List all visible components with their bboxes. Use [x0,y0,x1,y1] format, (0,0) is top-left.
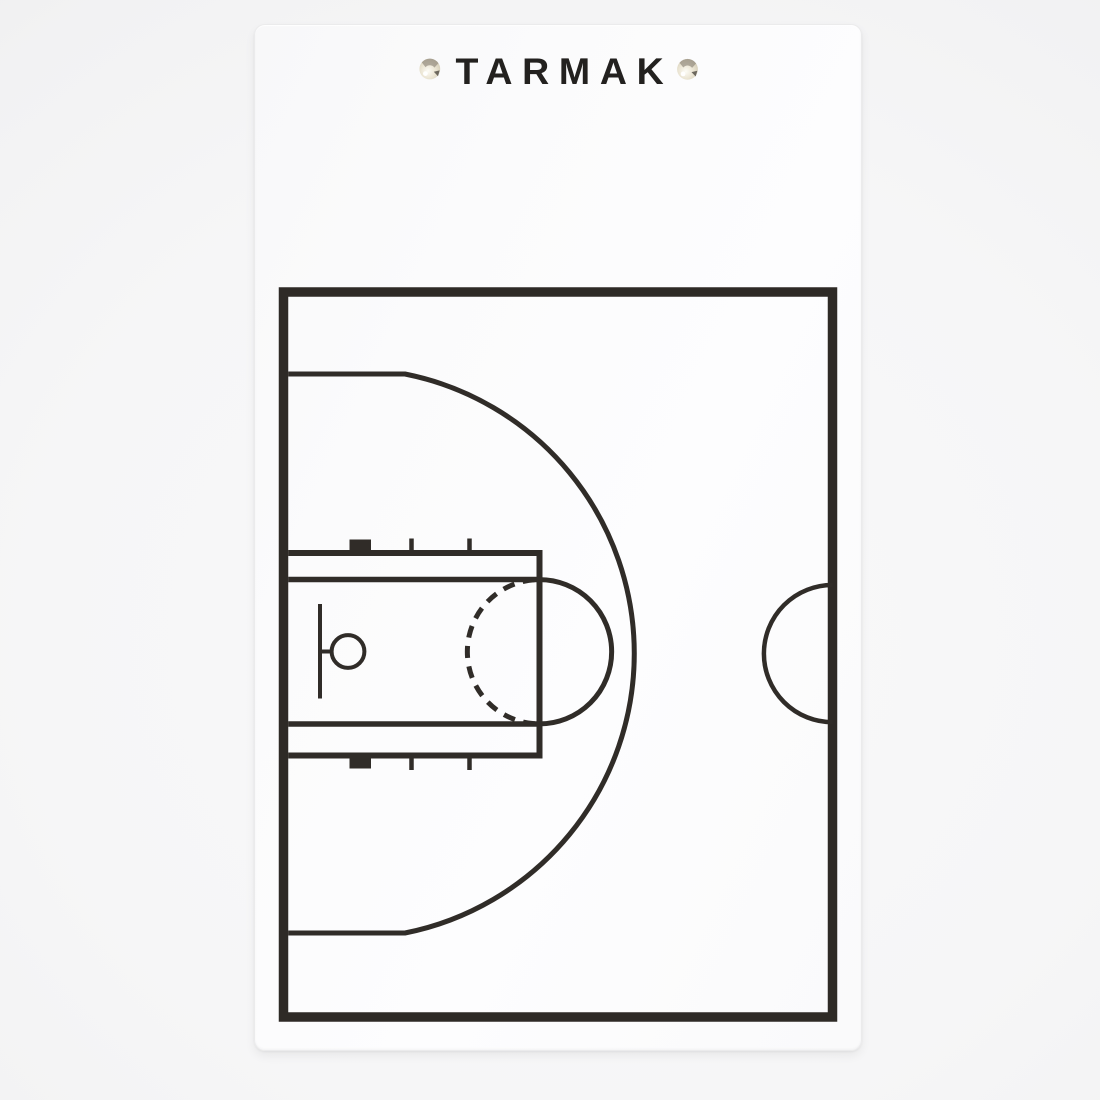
svg-text:TARMAK: TARMAK [456,50,674,92]
